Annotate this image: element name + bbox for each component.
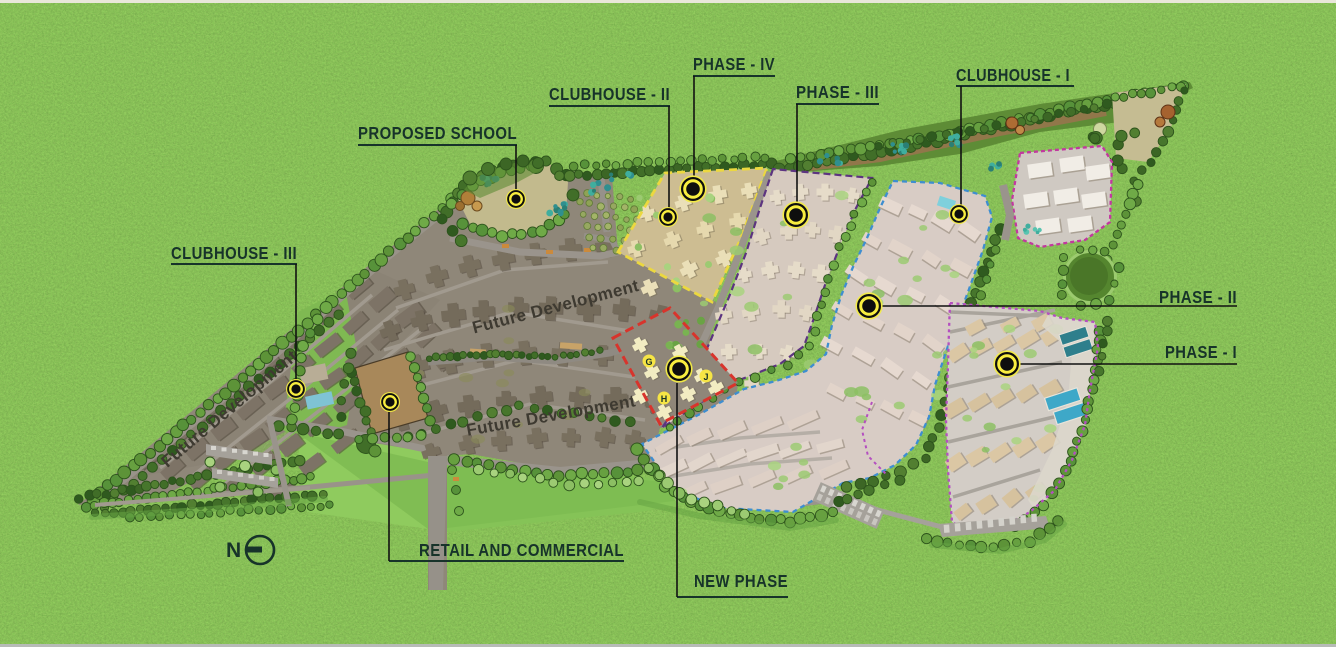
svg-text:PHASE - IV: PHASE - IV — [693, 54, 775, 74]
svg-text:PHASE - III: PHASE - III — [796, 82, 879, 102]
svg-text:H: H — [661, 394, 668, 404]
svg-text:PROPOSED SCHOOL: PROPOSED SCHOOL — [358, 123, 517, 143]
svg-text:G: G — [645, 357, 652, 367]
svg-text:J: J — [703, 372, 708, 382]
svg-text:CLUBHOUSE - I: CLUBHOUSE - I — [956, 65, 1070, 85]
svg-text:RETAIL AND COMMERCIAL: RETAIL AND COMMERCIAL — [419, 540, 624, 560]
svg-text:PHASE - I: PHASE - I — [1165, 342, 1237, 362]
svg-text:CLUBHOUSE - III: CLUBHOUSE - III — [171, 243, 297, 263]
svg-text:NEW PHASE: NEW PHASE — [694, 571, 788, 591]
svg-text:N: N — [226, 539, 241, 562]
svg-text:CLUBHOUSE - II: CLUBHOUSE - II — [549, 84, 670, 104]
svg-text:PHASE - II: PHASE - II — [1159, 287, 1237, 307]
